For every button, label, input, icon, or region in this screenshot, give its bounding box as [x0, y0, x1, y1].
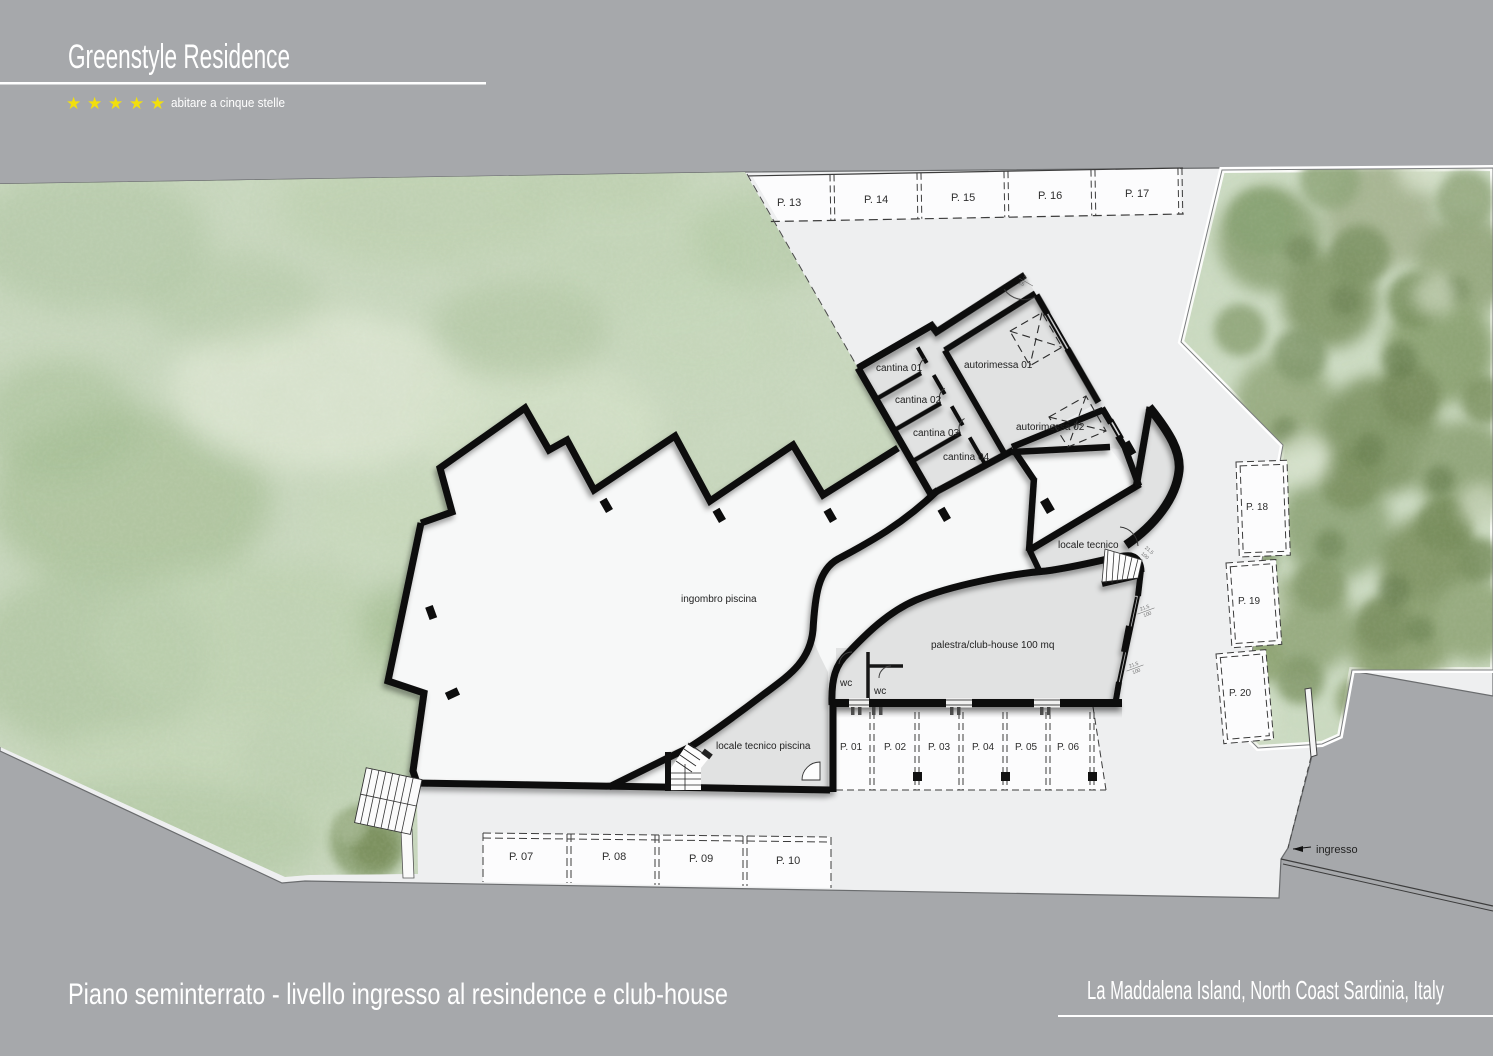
svg-text:P. 05: P. 05 [1015, 742, 1037, 753]
svg-text:P. 10: P. 10 [776, 855, 800, 867]
svg-text:cantina 04: cantina 04 [943, 452, 990, 463]
svg-text:P. 20: P. 20 [1229, 688, 1251, 699]
svg-text:Piano seminterrato - livello i: Piano seminterrato - livello ingresso al… [68, 978, 728, 1011]
svg-text:autorimessa 01: autorimessa 01 [964, 360, 1033, 371]
svg-text:P. 17: P. 17 [1125, 188, 1149, 200]
svg-text:★: ★ [150, 94, 165, 113]
svg-text:P. 16: P. 16 [1038, 190, 1062, 202]
svg-text:locale tecnico: locale tecnico [1058, 540, 1119, 551]
svg-text:★: ★ [108, 94, 123, 113]
svg-text:cantina 03: cantina 03 [913, 428, 960, 439]
svg-text:P. 08: P. 08 [602, 851, 626, 863]
svg-text:P. 15: P. 15 [951, 192, 975, 204]
svg-text:autorimessa 02: autorimessa 02 [1016, 422, 1085, 433]
svg-text:P. 07: P. 07 [509, 851, 533, 863]
svg-text:P. 13: P. 13 [777, 197, 801, 209]
svg-text:★: ★ [66, 94, 81, 113]
svg-text:cantina 01: cantina 01 [876, 363, 923, 374]
svg-text:wc: wc [873, 686, 886, 697]
svg-text:P. 01: P. 01 [840, 742, 862, 753]
svg-text:Greenstyle Residence: Greenstyle Residence [68, 38, 290, 76]
svg-text:locale tecnico piscina: locale tecnico piscina [716, 741, 811, 752]
svg-text:ingresso: ingresso [1316, 844, 1358, 856]
svg-text:wc: wc [839, 678, 852, 689]
svg-text:★: ★ [129, 94, 144, 113]
svg-text:P. 18: P. 18 [1246, 502, 1268, 513]
svg-text:abitare a cinque stelle: abitare a cinque stelle [171, 95, 285, 110]
svg-text:P. 04: P. 04 [972, 742, 994, 753]
svg-text:P. 09: P. 09 [689, 853, 713, 865]
svg-text:palestra/club-house 100 mq: palestra/club-house 100 mq [931, 640, 1054, 651]
svg-text:P. 19: P. 19 [1238, 596, 1260, 607]
svg-text:P. 06: P. 06 [1057, 742, 1079, 753]
svg-text:P. 14: P. 14 [864, 194, 888, 206]
svg-text:cantina 02: cantina 02 [895, 395, 942, 406]
svg-text:P. 03: P. 03 [928, 742, 950, 753]
svg-text:ingombro piscina: ingombro piscina [681, 594, 757, 605]
svg-text:P. 02: P. 02 [884, 742, 906, 753]
svg-text:La Maddalena Island, North Coa: La Maddalena Island, North Coast Sardini… [1087, 975, 1444, 1005]
svg-text:★: ★ [87, 94, 102, 113]
